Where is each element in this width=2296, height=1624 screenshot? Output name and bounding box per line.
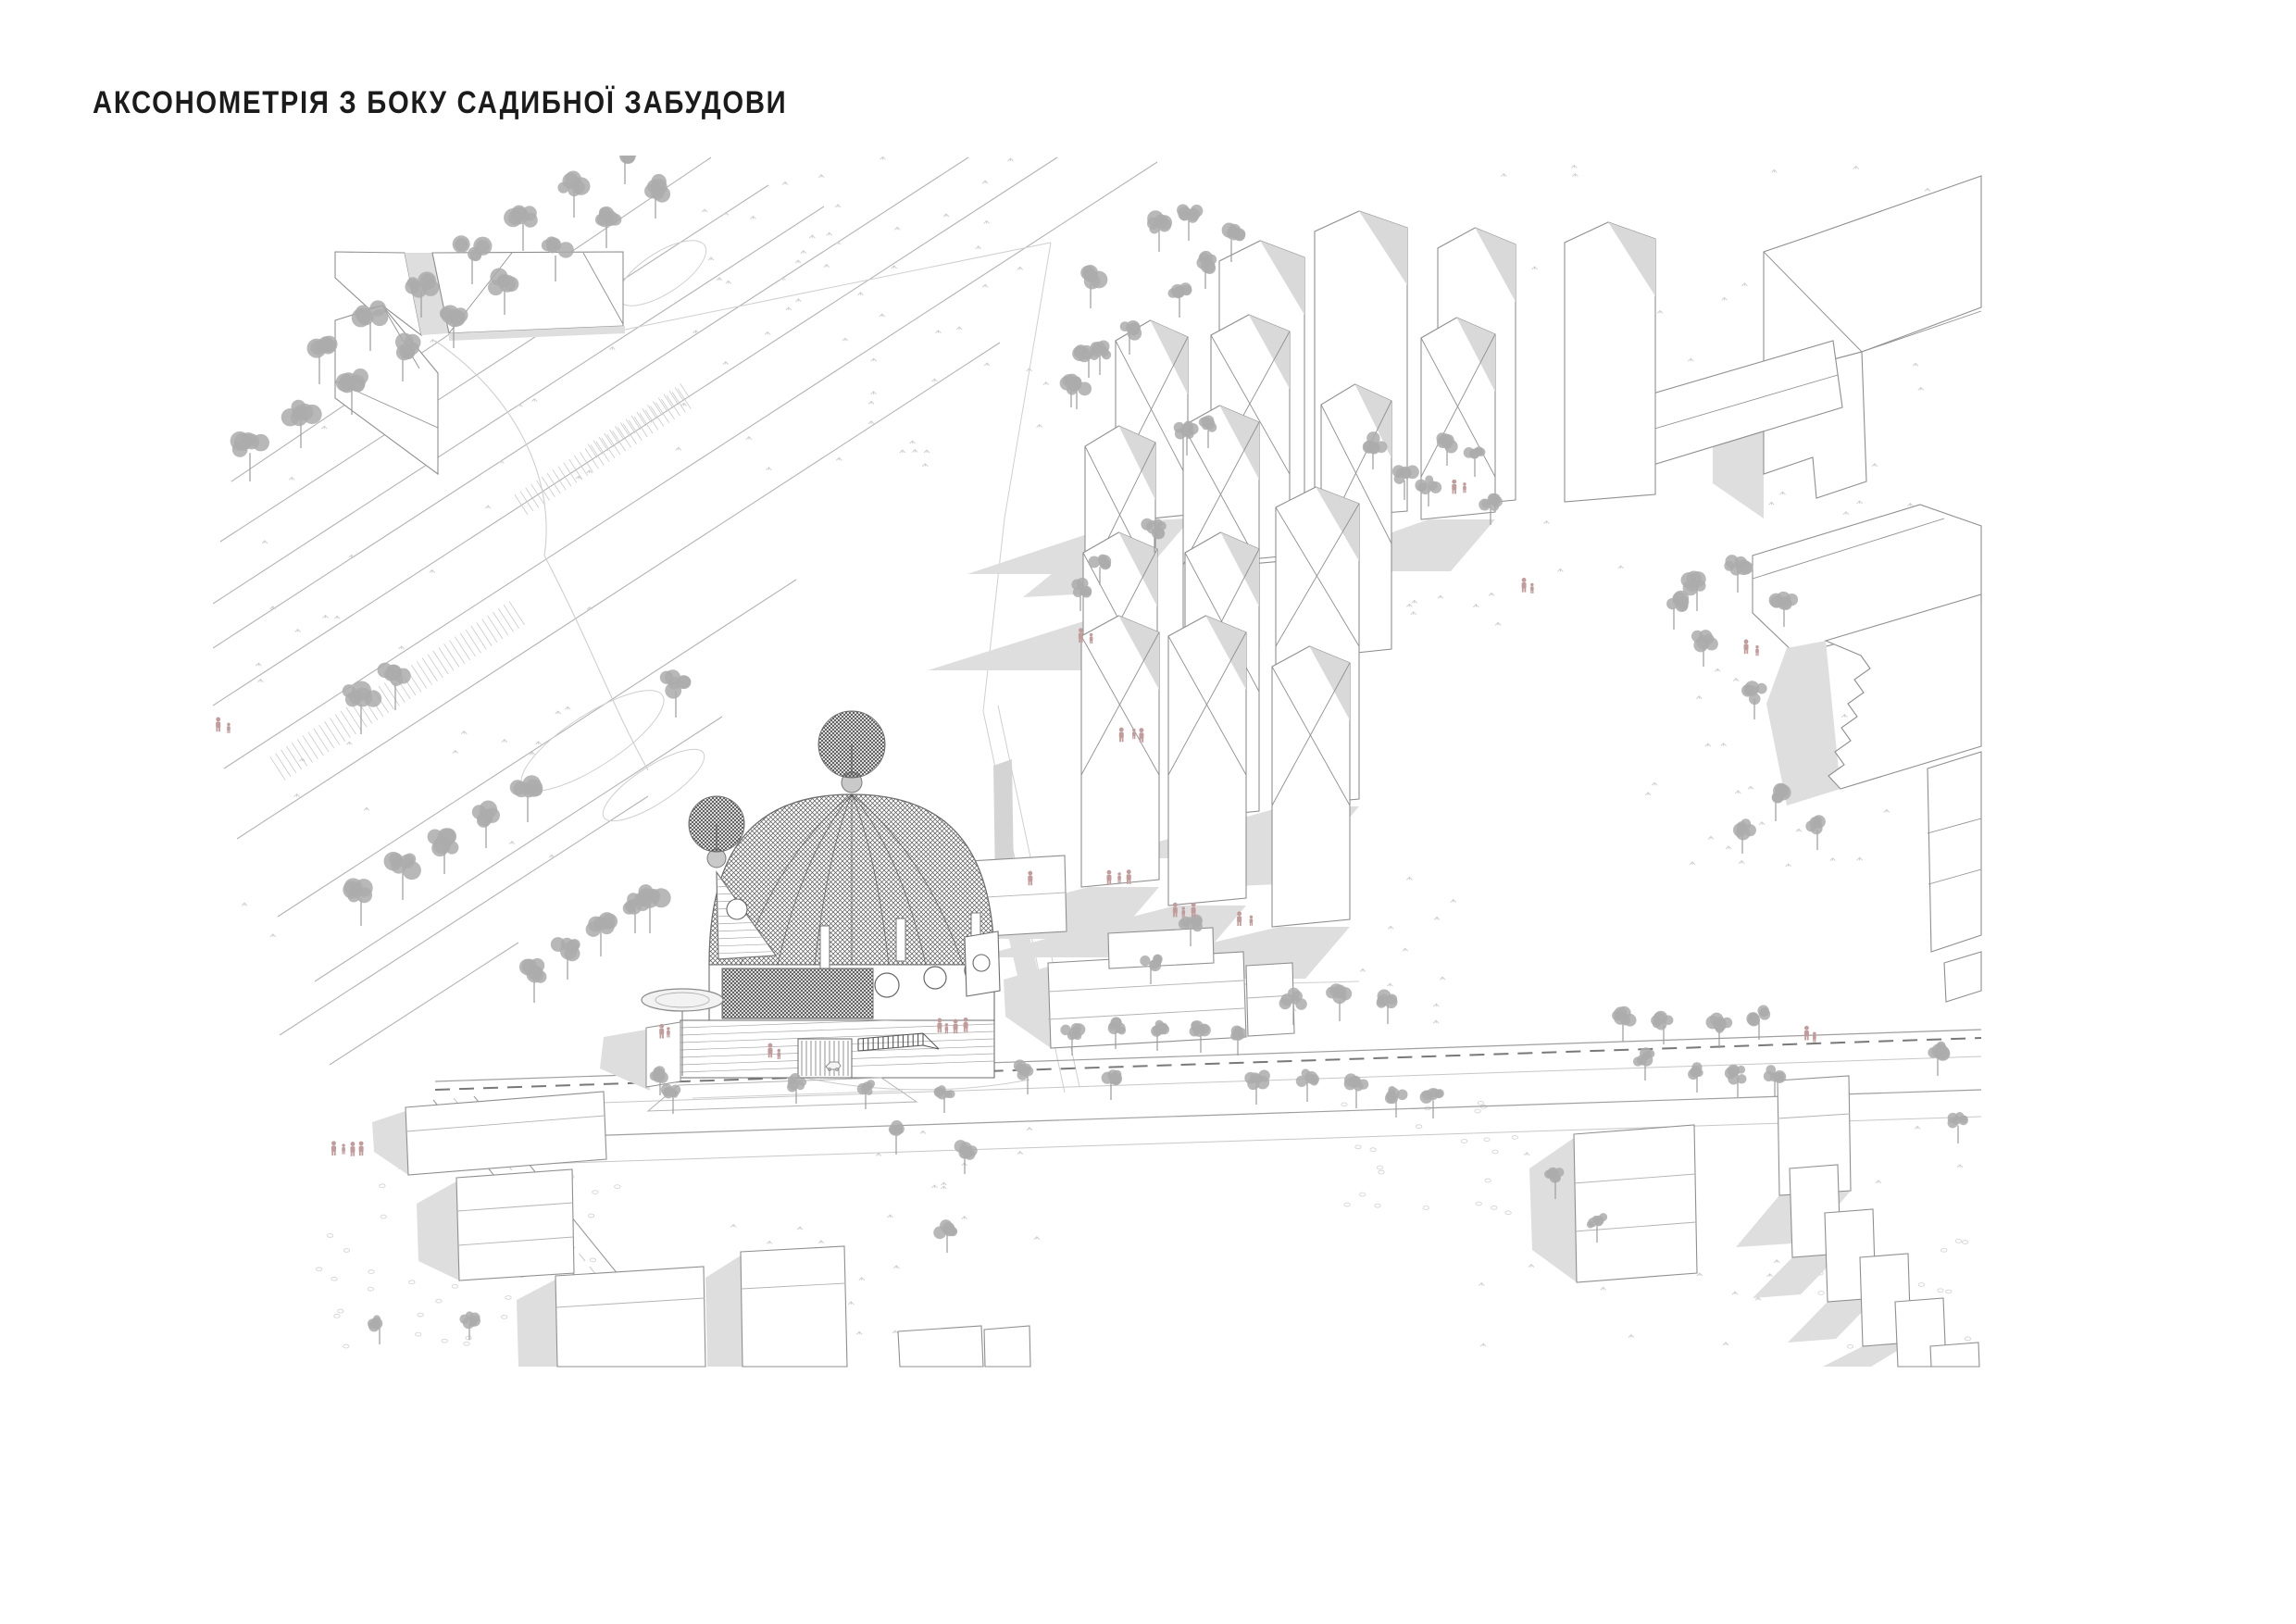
people-group: [216, 718, 231, 733]
tree: [586, 912, 618, 956]
tree: [1377, 990, 1398, 1024]
person-figure: [216, 718, 220, 732]
tree: [660, 669, 692, 718]
person-figure: [227, 723, 231, 733]
tree: [933, 1219, 957, 1253]
person-figure: [1755, 645, 1759, 656]
tree: [1725, 1065, 1747, 1097]
tree: [1167, 282, 1192, 318]
tree: [510, 775, 543, 822]
tree: [384, 852, 421, 900]
tree: [1733, 818, 1756, 854]
building-right-terrace: [1766, 594, 1981, 1002]
tree: [1706, 1013, 1733, 1048]
house: [705, 1246, 847, 1367]
person-figure: [1813, 1031, 1816, 1042]
tree: [1746, 1006, 1770, 1040]
tree: [661, 1084, 680, 1114]
tree: [368, 1315, 382, 1344]
people-group: [1522, 578, 1534, 593]
tree: [1147, 210, 1172, 252]
person-figure: [350, 1142, 355, 1156]
person-figure: [1804, 1026, 1809, 1041]
person-figure: [331, 1141, 336, 1156]
people-group: [1237, 911, 1253, 926]
tree: [1420, 1088, 1444, 1118]
person-figure: [1522, 578, 1527, 593]
house: [898, 1326, 983, 1367]
tree: [644, 174, 670, 219]
people-group: [1744, 640, 1759, 656]
tree: [459, 1311, 480, 1340]
tree: [551, 937, 580, 980]
tree: [428, 828, 459, 874]
person-figure: [1237, 911, 1242, 926]
tree: [1196, 251, 1217, 289]
people-group: [331, 1141, 364, 1156]
tree: [1666, 591, 1689, 630]
tree: [472, 801, 500, 848]
church: [600, 711, 1000, 1111]
house: [1529, 1125, 1697, 1282]
tree: [1385, 1086, 1408, 1118]
tree: [1805, 815, 1825, 850]
person-figure: [1744, 640, 1749, 655]
tree: [231, 431, 269, 481]
tree: [1724, 555, 1753, 593]
tree: [1612, 1006, 1636, 1042]
tree: [1230, 1025, 1246, 1056]
building-top-left: [335, 252, 625, 474]
tree: [1741, 681, 1767, 719]
tower: [1565, 222, 1655, 502]
tree: [306, 336, 337, 384]
house: [372, 1092, 606, 1175]
house: [517, 1267, 705, 1367]
tree: [343, 878, 372, 926]
tree: [504, 206, 538, 251]
tree: [1948, 1112, 1968, 1143]
tree: [1688, 1062, 1703, 1093]
tree: [955, 1140, 978, 1174]
person-figure: [1250, 916, 1254, 926]
tree: [619, 143, 638, 184]
axonometric-drawing: [0, 0, 2296, 1624]
tree: [1177, 204, 1203, 241]
person-figure: [359, 1142, 364, 1156]
tree: [1102, 1069, 1122, 1100]
person-figure: [342, 1143, 345, 1154]
tree: [1691, 630, 1718, 667]
person-figure: [1530, 583, 1534, 593]
tree: [1633, 1047, 1654, 1081]
tree: [1326, 983, 1352, 1021]
house: [417, 1169, 574, 1280]
tree: [557, 171, 590, 218]
people: [216, 480, 1816, 1156]
house: [984, 1326, 1030, 1367]
tree: [1651, 1011, 1673, 1044]
people-group: [1804, 1026, 1816, 1043]
tree: [1296, 1068, 1319, 1102]
tree: [1063, 374, 1092, 409]
tree: [1928, 1042, 1950, 1076]
presentation-page: АКСОНОМЕТРІЯ З БОКУ САДИБНОЇ ЗАБУДОВИ: [0, 0, 2296, 1624]
tree: [889, 1120, 905, 1155]
house: [1930, 1343, 1979, 1367]
tree: [1344, 1073, 1369, 1108]
tree: [1080, 265, 1107, 308]
tree: [1244, 1070, 1270, 1105]
tree: [519, 958, 547, 1003]
tree: [635, 884, 671, 933]
